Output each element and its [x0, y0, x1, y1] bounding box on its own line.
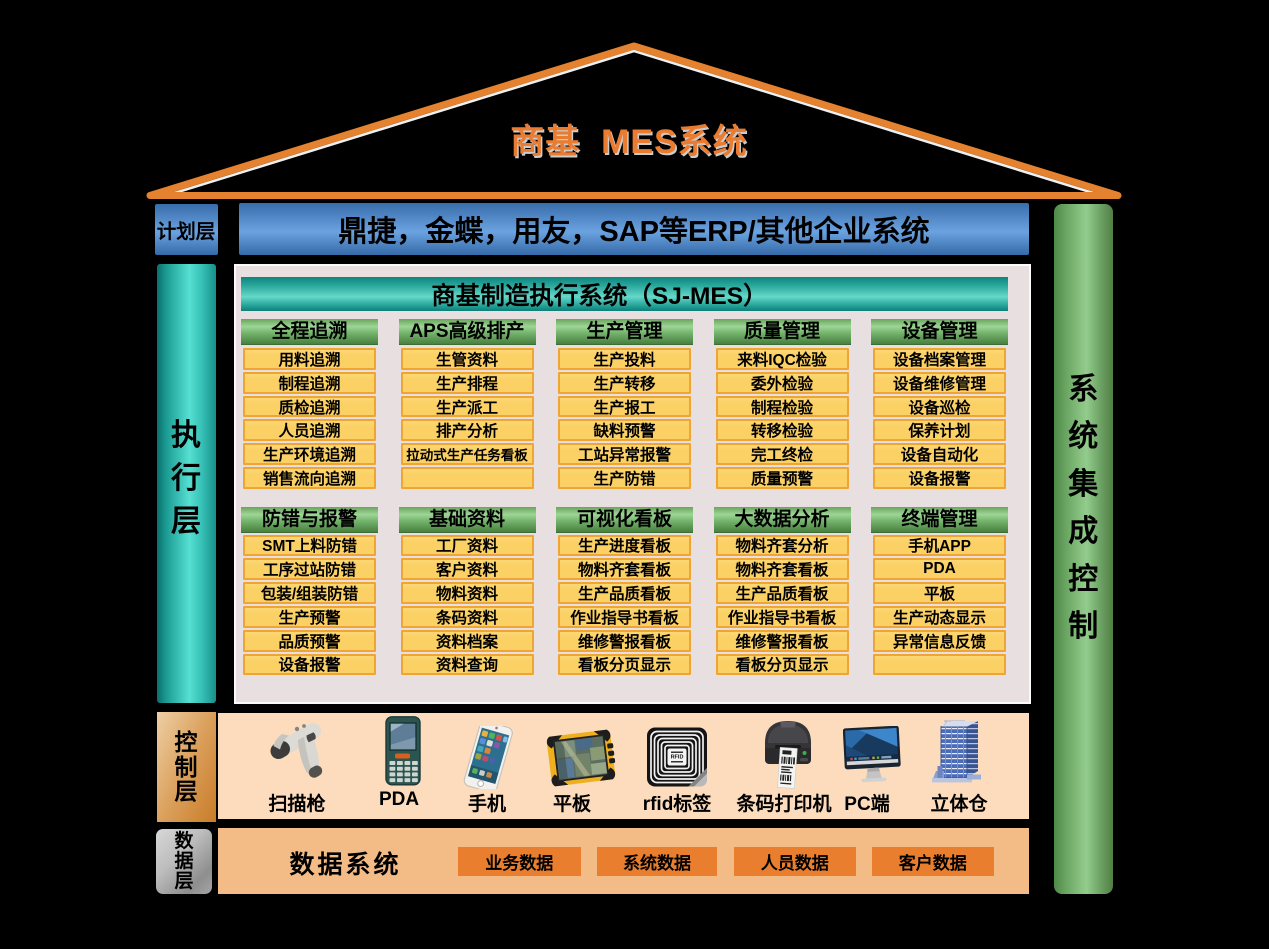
svg-text:RFID: RFID: [671, 755, 684, 761]
